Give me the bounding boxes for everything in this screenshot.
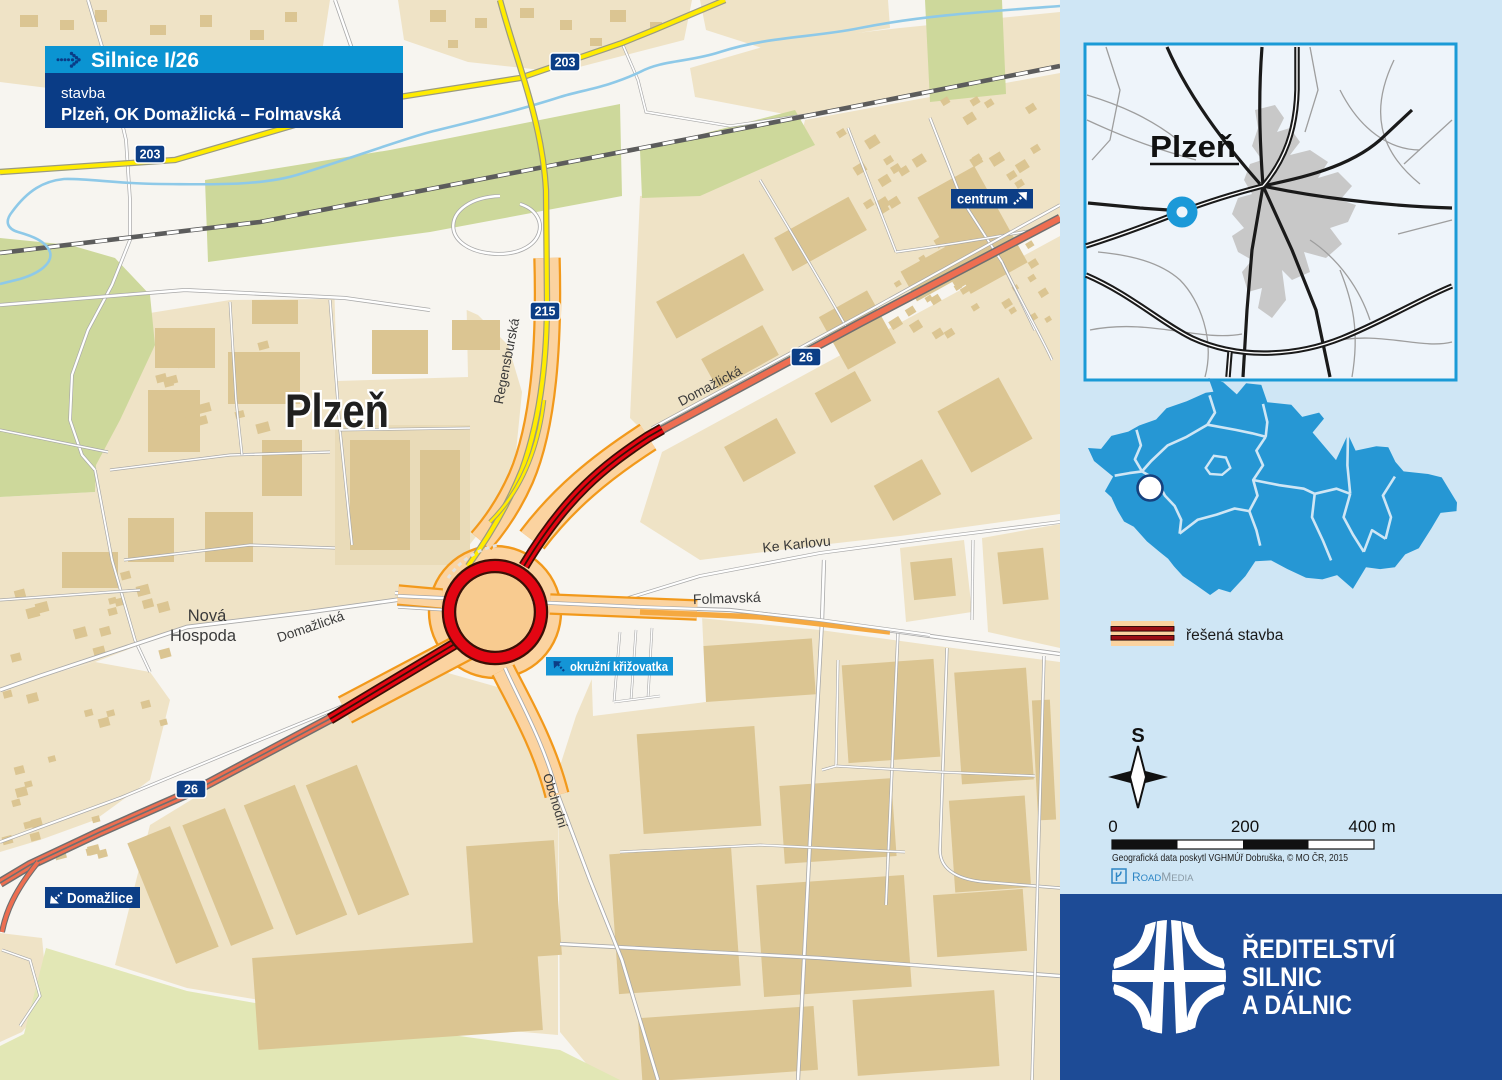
svg-text:200: 200: [1231, 817, 1259, 836]
svg-text:Plzeň, OK Domažlická – Folmavs: Plzeň, OK Domažlická – Folmavská: [61, 104, 341, 124]
svg-text:400 m: 400 m: [1348, 817, 1395, 836]
svg-text:Plzeň: Plzeň: [1150, 129, 1236, 164]
svg-text:řešená stavba: řešená stavba: [1186, 627, 1284, 644]
svg-text:ŘEDITELSTVÍ: ŘEDITELSTVÍ: [1242, 933, 1396, 964]
svg-text:Folmavská: Folmavská: [693, 589, 761, 607]
svg-text:okružní křižovatka: okružní křižovatka: [570, 659, 669, 674]
svg-text:26: 26: [799, 351, 813, 365]
svg-text:stavba: stavba: [61, 85, 106, 102]
svg-text:203: 203: [140, 148, 161, 162]
svg-text:215: 215: [535, 305, 556, 319]
svg-text:centrum: centrum: [957, 191, 1008, 207]
svg-text:Hospoda: Hospoda: [170, 627, 237, 645]
svg-text:Silnice I/26: Silnice I/26: [91, 49, 199, 72]
svg-text:203: 203: [555, 56, 576, 70]
svg-text:S: S: [1131, 725, 1144, 747]
svg-text:Plzeň: Plzeň: [285, 384, 389, 437]
svg-text:Nová: Nová: [188, 607, 227, 625]
svg-text:0: 0: [1108, 817, 1117, 836]
svg-text:ROADMEDIA: ROADMEDIA: [1132, 870, 1194, 884]
svg-text:26: 26: [184, 783, 198, 797]
svg-text:SILNIC: SILNIC: [1242, 962, 1322, 992]
svg-text:A DÁLNIC: A DÁLNIC: [1242, 989, 1352, 1020]
svg-text:Domažlice: Domažlice: [67, 891, 133, 907]
svg-text:Geografická data poskytl VGHMÚ: Geografická data poskytl VGHMÚř Dobruška…: [1112, 851, 1348, 864]
